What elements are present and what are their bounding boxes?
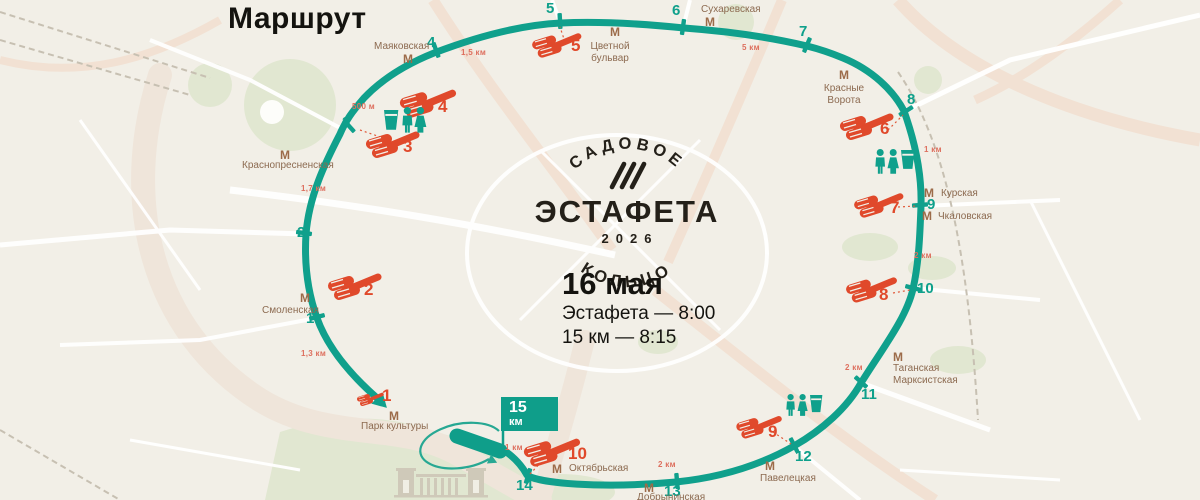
finish-flag-unit: км (509, 417, 558, 429)
metro-station-label: Павелецкая (760, 473, 816, 485)
metro-station-label: Краснопресненская (242, 160, 334, 172)
distance-label: 1,5 км (461, 48, 486, 57)
route-map-poster: САДОВОЕ КОЛЬЦО ЭСТАФЕТА 2026 Маршрут 16 … (0, 0, 1200, 500)
metro-station-label: Курская (941, 188, 978, 200)
exchange-number: 10 (568, 444, 587, 464)
logo-name-text: ЭСТАФЕТА (535, 194, 720, 229)
exchange-number: 3 (403, 137, 412, 157)
logo-year-text: 2026 (602, 231, 659, 246)
exchange-number: 4 (438, 97, 447, 117)
metro-icon: М (300, 291, 310, 305)
distance-label: 2 км (845, 363, 863, 372)
exchange-number: 9 (768, 422, 777, 442)
distance-label: 2 км (914, 251, 932, 260)
metro-icon: М (839, 68, 849, 82)
metro-station-label: Сухаревская (701, 4, 761, 16)
page-title: Маршрут (228, 2, 367, 36)
metro-station-label: Маяковская (374, 41, 429, 53)
city-map: САДОВОЕ КОЛЬЦО ЭСТАФЕТА 2026 (0, 0, 1200, 500)
metro-icon: М (922, 209, 932, 223)
distance-label: 1,3 км (301, 349, 326, 358)
distance-label: 2 км (658, 460, 676, 469)
metro-station-label: Парк культуры (361, 421, 428, 433)
exchange-number: 8 (879, 285, 888, 305)
km-marker-label: 12 (795, 448, 812, 465)
pond (260, 100, 284, 124)
exchange-number: 2 (364, 280, 373, 300)
finish-flag: 15 км (501, 397, 558, 431)
exchange-number: 7 (890, 198, 899, 218)
metro-icon: М (403, 52, 413, 66)
metro-station-label: Добрынинская (637, 492, 705, 500)
km-marker-label: 11 (861, 386, 877, 403)
metro-station-label: Октябрьская (569, 463, 628, 475)
finish-flag-value: 15 (509, 400, 558, 417)
km-marker-label: 5 (546, 0, 554, 17)
water-cup-icon (901, 150, 915, 169)
km-marker-label: 2 (297, 224, 305, 241)
metro-icon: М (765, 459, 775, 473)
distance-label: 1 км (924, 145, 942, 154)
distance-label: 500 м (352, 102, 375, 111)
km-marker-label: 3 (342, 114, 350, 131)
event-date: 16 мая (562, 266, 663, 302)
metro-station-label: Цветной бульвар (577, 41, 643, 64)
metro-station-label: Чкаловская (938, 211, 992, 223)
metro-station-label: Таганская Марксистская (893, 363, 958, 386)
water-cup-icon (384, 110, 398, 130)
exchange-number: 6 (880, 119, 889, 139)
metro-icon: М (924, 186, 934, 200)
distance-label: 1,7 км (301, 184, 326, 193)
metro-icon: М (893, 350, 903, 364)
km-marker-label: 10 (917, 280, 934, 297)
metro-icon: М (705, 15, 715, 29)
km-marker-label: 7 (799, 23, 807, 40)
event-relay-time: Эстафета — 8:00 (562, 303, 715, 325)
metro-icon: М (552, 462, 562, 476)
distance-label: 1 км (505, 443, 523, 452)
water-cup-icon (810, 395, 822, 412)
event-15km-time: 15 км — 8:15 (562, 327, 676, 349)
km-marker-label: 8 (907, 91, 915, 108)
distance-label: 5 км (742, 43, 760, 52)
km-marker-label: 14 (516, 477, 533, 494)
metro-station-label: Красные Ворота (814, 83, 874, 106)
metro-station-label: Смоленская (262, 305, 319, 317)
metro-icon: М (610, 25, 620, 39)
km-marker-label: 6 (672, 2, 680, 19)
exchange-number: 1 (382, 386, 391, 406)
